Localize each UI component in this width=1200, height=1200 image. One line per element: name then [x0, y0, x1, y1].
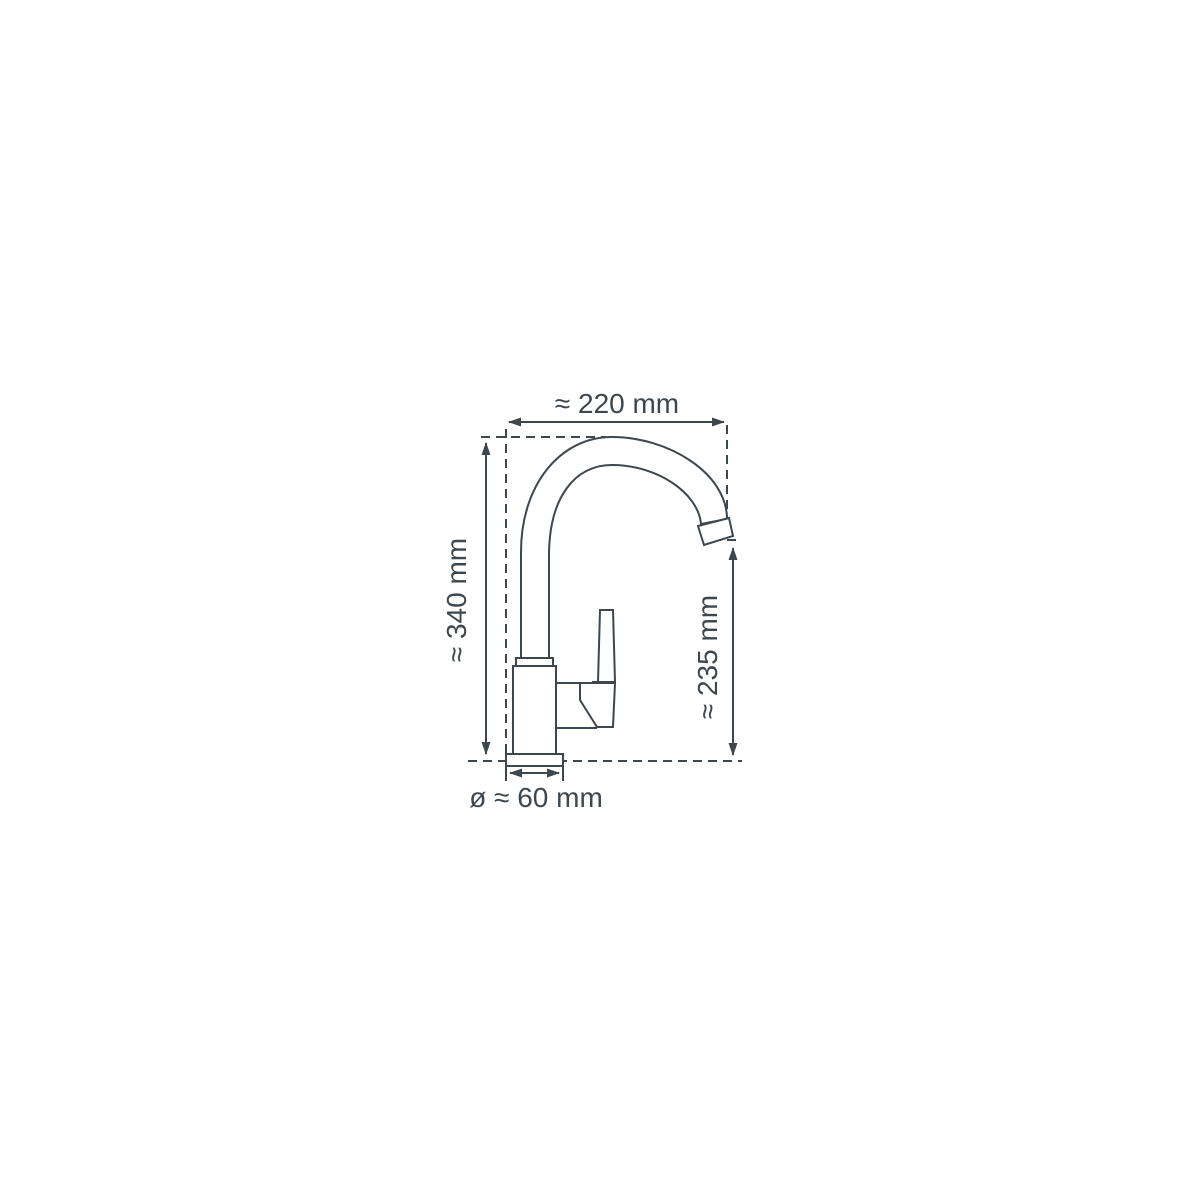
height-left-dimension-label: ≈ 340 mm — [441, 538, 472, 662]
faucet-collar-ring — [516, 658, 553, 666]
diameter-dimension-label: ø ≈ 60 mm — [469, 782, 603, 813]
faucet-base-flange — [506, 754, 563, 766]
technical-drawing-page: ≈ 220 mm ≈ 340 mm ≈ 235 mm ø ≈ 60 mm — [0, 0, 1200, 1200]
faucet-body — [513, 666, 556, 754]
faucet-dimension-diagram: ≈ 220 mm ≈ 340 mm ≈ 235 mm ø ≈ 60 mm — [0, 0, 1200, 1200]
width-dimension-label: ≈ 220 mm — [555, 388, 679, 419]
height-right-dimension-label: ≈ 235 mm — [692, 595, 723, 719]
faucet-handle-block — [580, 683, 615, 727]
faucet-handle-lever — [598, 610, 615, 682]
